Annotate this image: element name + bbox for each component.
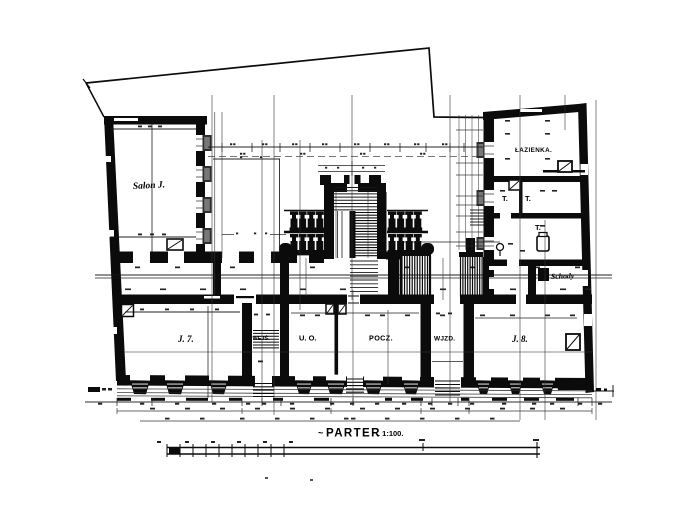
svg-text:J. 7.: J. 7. xyxy=(177,334,194,344)
svg-text:WEJŚ.: WEJŚ. xyxy=(253,335,271,342)
svg-text:~: ~ xyxy=(318,428,323,438)
svg-text:POCZ.: POCZ. xyxy=(369,334,393,343)
svg-text:ŁAZIENKA.: ŁAZIENKA. xyxy=(515,147,552,154)
svg-text:WJZD.: WJZD. xyxy=(434,336,455,343)
svg-text:J. 8.: J. 8. xyxy=(511,334,528,344)
svg-text:T.: T. xyxy=(535,223,541,232)
svg-text:T.: T. xyxy=(502,194,508,203)
svg-text:. 1:100.: . 1:100. xyxy=(378,429,403,438)
svg-text:T.: T. xyxy=(525,194,531,203)
svg-text:PARTER: PARTER xyxy=(326,428,381,440)
svg-text:Salon J.: Salon J. xyxy=(133,180,166,192)
svg-text:U. O.: U. O. xyxy=(299,334,317,343)
svg-text:Schody: Schody xyxy=(551,271,575,281)
